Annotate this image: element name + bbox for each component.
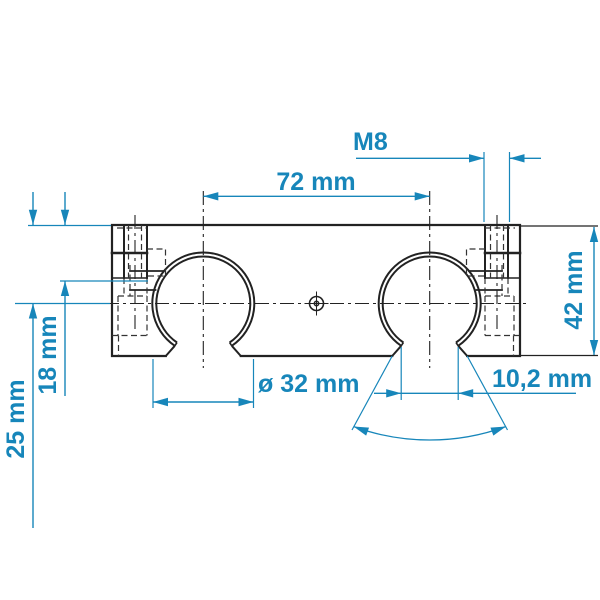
center-mark-cross (305, 292, 329, 316)
block-edges (112, 225, 520, 356)
dim-label-center-offset: 25 mm (2, 379, 30, 458)
end-features-solid (112, 225, 520, 290)
dim-label-thread: M8 (353, 128, 388, 156)
chamfer-angle-arc (354, 427, 507, 441)
dim-bore: ø 32 mm (153, 359, 359, 408)
dim-label-height: 42 mm (560, 250, 588, 329)
dim-height: 42 mm (521, 226, 598, 356)
technical-drawing-page: 72 mm M8 42 mm ø 32 mm (0, 0, 600, 600)
dim-label-screw-offset: 18 mm (34, 315, 62, 394)
dimensions: 72 mm M8 42 mm ø 32 mm (2, 128, 598, 528)
block-outline (112, 225, 520, 356)
technical-drawing: 72 mm M8 42 mm ø 32 mm (0, 0, 600, 600)
dim-chamfer-angle (352, 356, 508, 440)
dim-label-slot-width: 10,2 mm (492, 365, 592, 393)
hidden-lines (112, 225, 520, 356)
dim-label-bore: ø 32 mm (258, 370, 359, 398)
center-mark (305, 292, 329, 316)
dim-thread-ext (484, 152, 510, 222)
dim-thread: M8 (353, 128, 541, 222)
dim-hole-spacing: 72 mm (203, 168, 429, 201)
dim-label-hole-spacing: 72 mm (276, 168, 355, 196)
